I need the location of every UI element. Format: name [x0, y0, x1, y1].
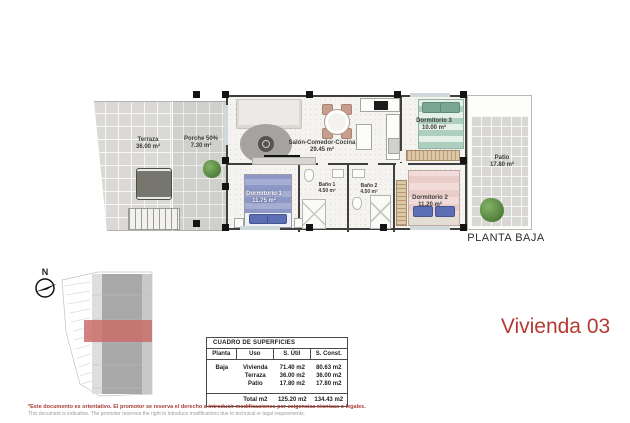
pillow — [422, 102, 442, 113]
floor-plan-sheet: Terraza36.00 m² Porche 50%7.30 m² Salón-… — [0, 0, 630, 423]
label-porche: Porche 50%7.30 m² — [171, 136, 231, 150]
label-terraza: Terraza36.00 m² — [118, 137, 178, 151]
tv-sideboard — [252, 157, 316, 165]
window-dormitorio3 — [410, 93, 450, 97]
plant-porch — [203, 160, 221, 178]
column — [222, 183, 229, 190]
label-dormitorio3: Dormitorio 310.00 m² — [404, 118, 464, 132]
table-body: Baja Vivienda 71.40 m2 80.63 m2 Terraza … — [207, 360, 347, 391]
header-sutil: S. Útil — [274, 349, 310, 359]
sink-bano1 — [332, 169, 344, 178]
toilet-bano1 — [304, 169, 314, 182]
total-label: Total m2 — [237, 397, 274, 403]
label-salon: Salón-Comedor-Cocina29.45 m² — [282, 140, 362, 154]
column — [460, 224, 467, 231]
label-bano2: Baño 24.50 m² — [349, 183, 389, 195]
header-uso: Uso — [237, 349, 274, 359]
label-dormitorio1: Dormitorio 111.75 m² — [234, 191, 294, 205]
site-plan: N — [28, 262, 156, 404]
plan-title: PLANTA BAJA — [446, 232, 566, 244]
outdoor-dining-set — [136, 168, 172, 200]
column — [460, 157, 467, 164]
kitchen-appliance — [388, 138, 400, 154]
label-patio: Patio17.80 m² — [472, 155, 532, 169]
column — [306, 91, 313, 98]
compass-icon — [36, 279, 54, 297]
plant-patio — [480, 198, 504, 222]
column — [222, 224, 229, 231]
pillow — [440, 102, 460, 113]
wall-bano2-right — [393, 163, 395, 232]
toilet-bano2 — [352, 197, 362, 210]
column — [460, 91, 467, 98]
wardrobe-dormitorio3 — [406, 150, 460, 161]
column — [193, 91, 200, 98]
label-bano1: Baño 14.50 m² — [307, 182, 347, 194]
unit-title: Vivienda 03 — [493, 315, 618, 339]
window-dormitorio2 — [410, 226, 450, 230]
column — [193, 220, 200, 227]
total-util: 125.20 m2 — [274, 397, 310, 403]
column — [222, 157, 229, 164]
total-const: 134.43 m2 — [311, 397, 347, 403]
disclaimer-es: *Este documento es orientativo. El promo… — [28, 404, 588, 410]
header-sconst: S. Const. — [311, 349, 347, 359]
column — [394, 91, 401, 98]
column — [306, 224, 313, 231]
site-highlight-unit — [84, 320, 152, 342]
header-planta: Planta — [207, 349, 237, 359]
cooktop — [374, 101, 388, 110]
table-header-row: Planta Uso S. Útil S. Const. — [207, 349, 347, 360]
stairs — [128, 208, 180, 230]
wall-bano-divider — [347, 163, 349, 232]
table-title: CUADRO DE SUPERFICIES — [207, 338, 347, 349]
label-dormitorio2: Dormitorio 211.20 m² — [400, 195, 460, 209]
dining-table — [324, 109, 350, 135]
table-row: Baja Vivienda 71.40 m2 80.63 m2 — [207, 364, 347, 372]
apartment-block — [226, 95, 467, 230]
column — [222, 91, 229, 98]
table-row: Terraza 36.00 m2 36.00 m2 — [207, 372, 347, 380]
tv — [264, 155, 300, 157]
column — [380, 224, 387, 231]
coffee-table — [258, 136, 274, 152]
door-bano2 — [368, 162, 378, 166]
disclaimer: *Este documento es orientativo. El promo… — [28, 404, 588, 417]
pillow — [249, 214, 269, 224]
compass-n-label: N — [42, 267, 49, 277]
table-row: Patio 17.80 m2 17.80 m2 — [207, 380, 347, 388]
door-bano1 — [318, 162, 328, 166]
sink-bano2 — [352, 169, 365, 178]
surfaces-table: CUADRO DE SUPERFICIES Planta Uso S. Útil… — [206, 337, 348, 407]
door-dormitorio2 — [396, 162, 408, 166]
pillow — [267, 214, 287, 224]
window-dormitorio1 — [240, 226, 280, 230]
disclaimer-en: This document is indicative. The promote… — [28, 411, 588, 417]
